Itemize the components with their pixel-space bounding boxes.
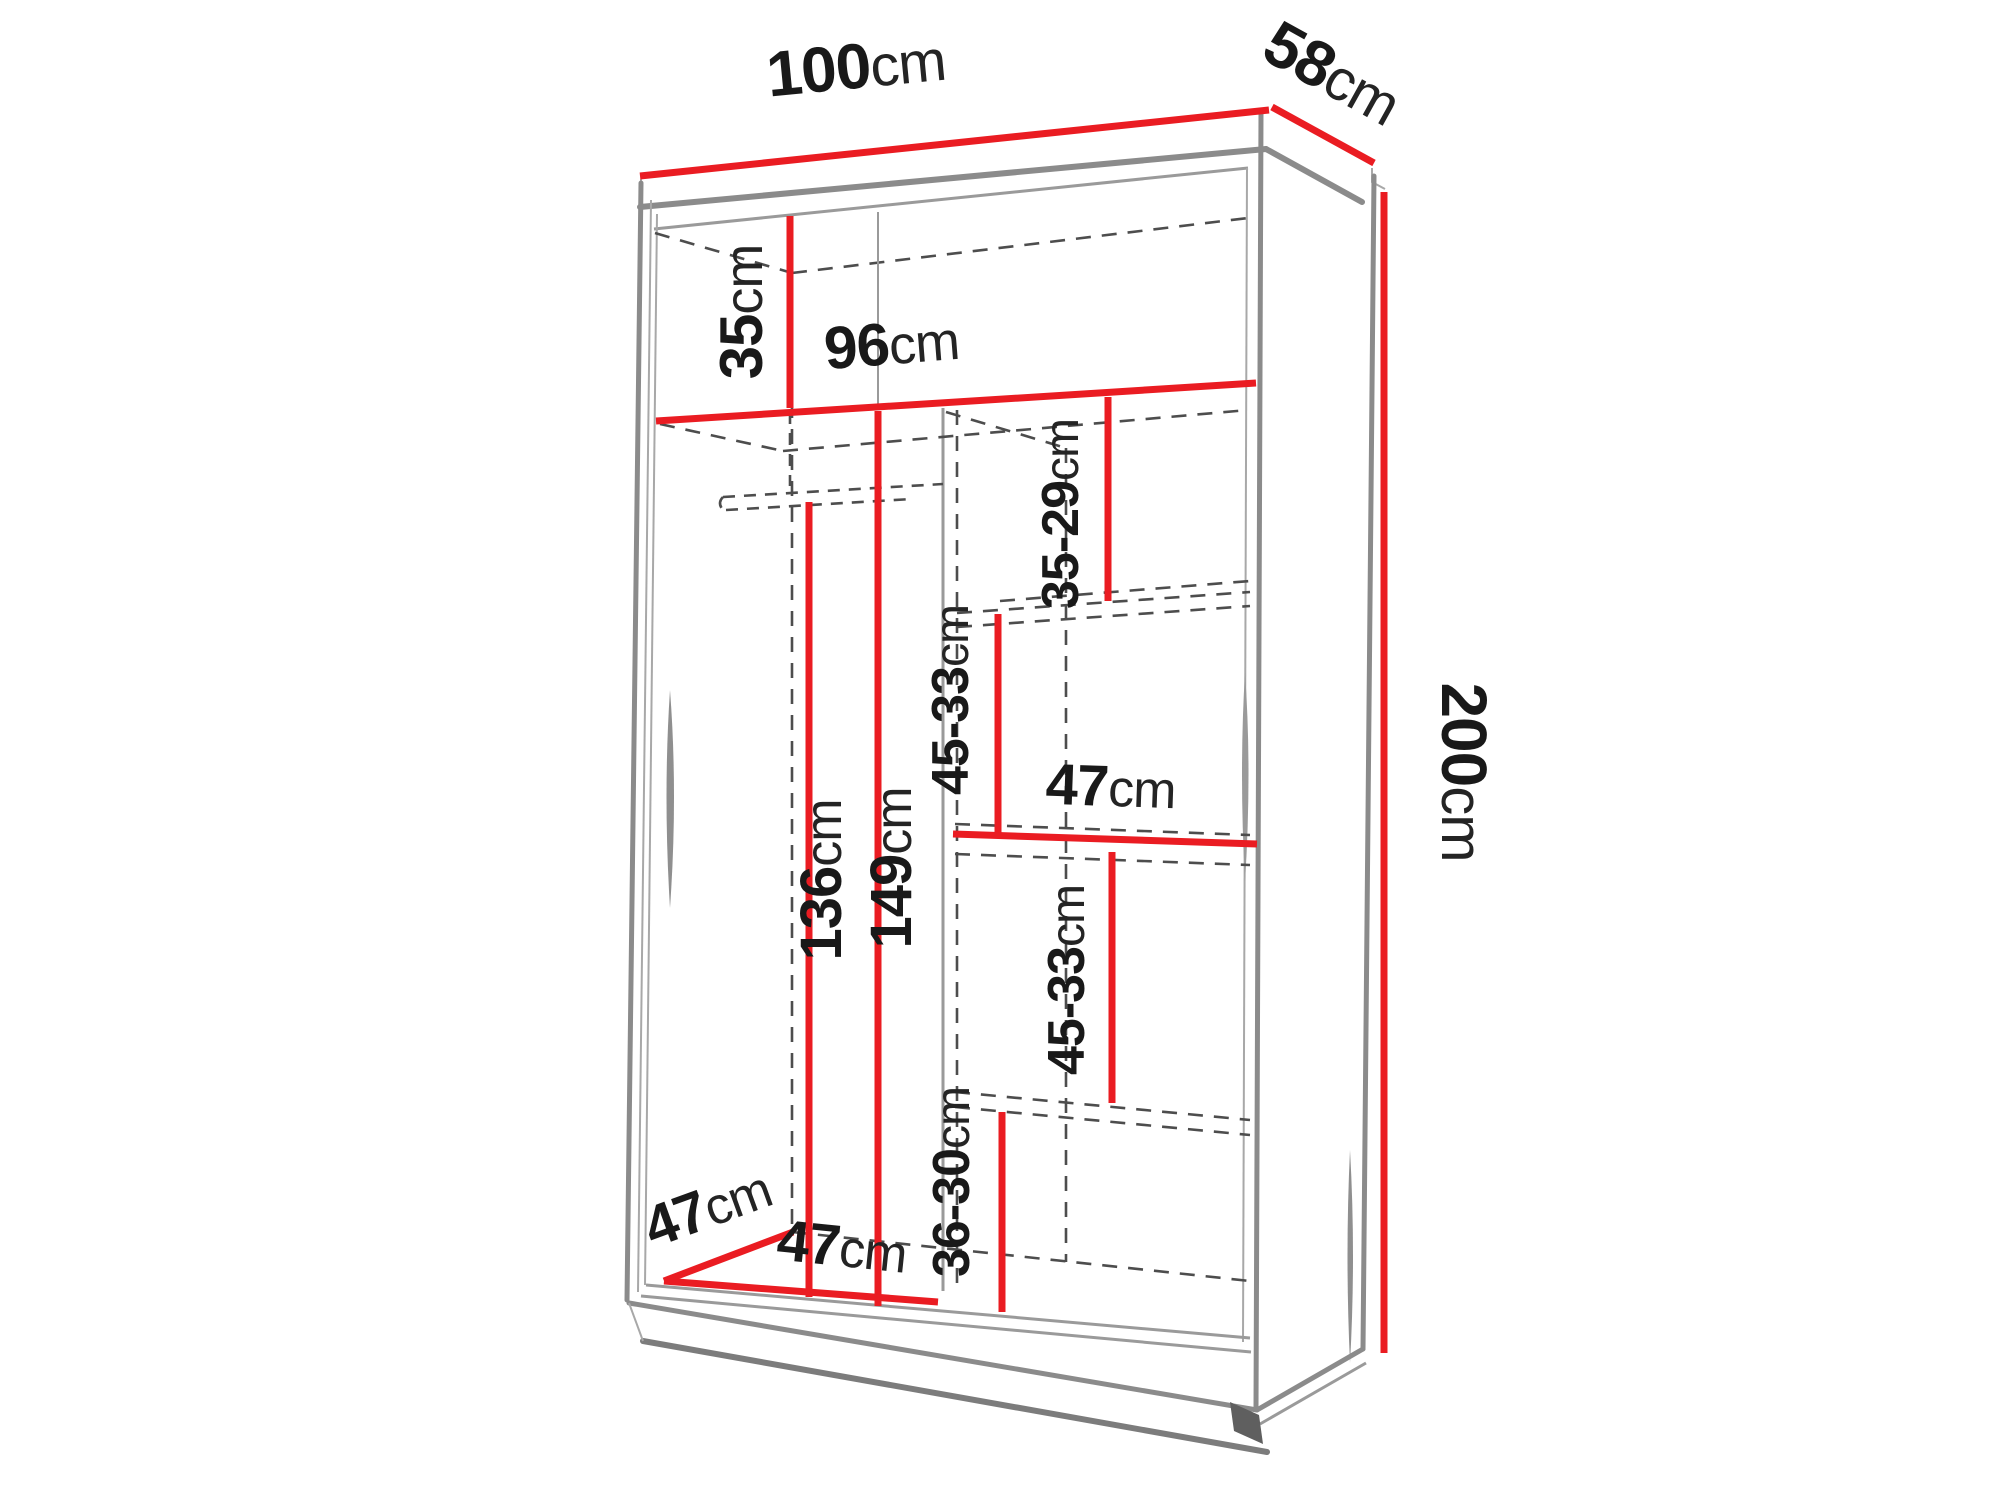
label-mid-right-gap: 45-33cm xyxy=(922,605,980,795)
label-shelf-width: 47cm xyxy=(1045,752,1177,821)
label-interior-width: 96cm xyxy=(822,305,962,382)
door-track-line xyxy=(641,1296,1251,1352)
top-shelf-back-edge-dashed xyxy=(783,410,1248,451)
right-front-edge-outer xyxy=(1256,112,1261,1409)
wardrobe-dimension-diagram: 100cm 58cm 200cm 35cm 96cm 35-29cm 45-33… xyxy=(0,0,2000,1500)
side-panel-reflection xyxy=(1348,1150,1354,1363)
label-height: 200cm xyxy=(1428,682,1500,861)
top-slab-side-edge xyxy=(1266,149,1362,202)
ceiling-back-edge-dashed xyxy=(792,218,1248,273)
label-lower-right-gap: 45-33cm xyxy=(1038,885,1096,1075)
label-upper-right-gap: 35-29cm xyxy=(1032,419,1090,609)
label-width: 100cm xyxy=(763,22,948,111)
dim-line-shelf-width-47 xyxy=(953,834,1257,844)
label-hanging-clearance: 136cm xyxy=(789,799,854,960)
hanging-rod-bottom-dashed xyxy=(726,499,912,510)
plinth-left-edge xyxy=(629,1303,643,1341)
left-interior-wall-line xyxy=(645,214,657,1285)
shelf2-top-dashed xyxy=(957,592,1250,613)
side-panel-back-edge xyxy=(1363,176,1374,1349)
dim-line-width-100 xyxy=(640,110,1269,176)
label-top-shelf: 35cm xyxy=(708,245,775,380)
label-left-section-height: 149cm xyxy=(859,787,924,948)
right-wall-reflection xyxy=(1242,672,1249,882)
hanging-rod-end-cap xyxy=(720,497,723,510)
interior-floor-line xyxy=(646,1285,1250,1338)
diagram-canvas: 100cm 58cm 200cm 35cm 96cm 35-29cm 45-33… xyxy=(0,0,2000,1500)
side-panel-bottom-edge-2 xyxy=(1260,1363,1366,1424)
label-left-section-width: 47cm xyxy=(774,1207,910,1285)
shelf3-bottom-dashed xyxy=(955,854,1250,865)
label-bottom-right-gap: 36-30cm xyxy=(923,1087,981,1277)
top-shelf-left-depth-dashed xyxy=(660,424,783,451)
left-door-reflection xyxy=(667,690,675,908)
label-depth: 58cm xyxy=(1252,6,1413,139)
hanging-rod-top-dashed xyxy=(723,484,943,497)
side-panel-bottom-edge xyxy=(1257,1349,1363,1410)
